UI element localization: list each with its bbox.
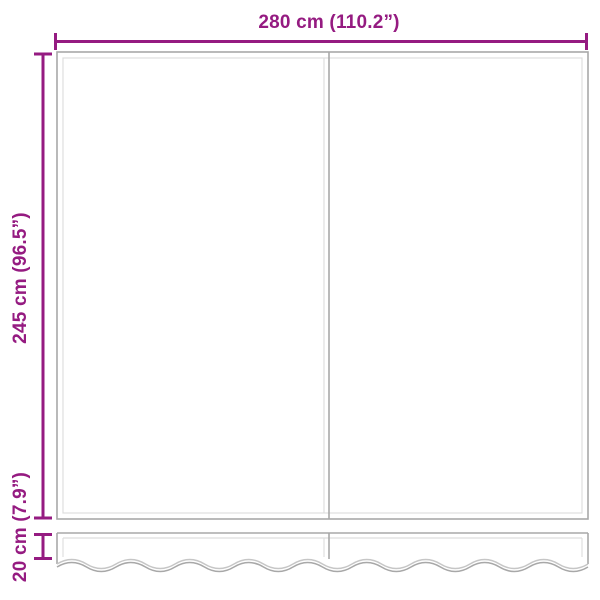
valance-strip [57, 533, 588, 572]
height-dimension-label: 245 cm (96.5”) [10, 212, 32, 344]
awning-dimension-diagram: 280 cm (110.2”) 245 cm (96.5”) 20 cm (7.… [0, 0, 600, 600]
width-dimension-label: 280 cm (110.2”) [258, 12, 399, 34]
panel-inner-border [63, 58, 582, 513]
awning-panel [57, 52, 588, 519]
valance-dimension-line [34, 535, 52, 559]
valance-dimension-label: 20 cm (7.9”) [10, 472, 32, 582]
panel-outer-border [57, 52, 588, 519]
width-dimension-line [56, 33, 587, 50]
diagram-drawing [0, 0, 600, 600]
height-dimension-line [34, 54, 52, 518]
